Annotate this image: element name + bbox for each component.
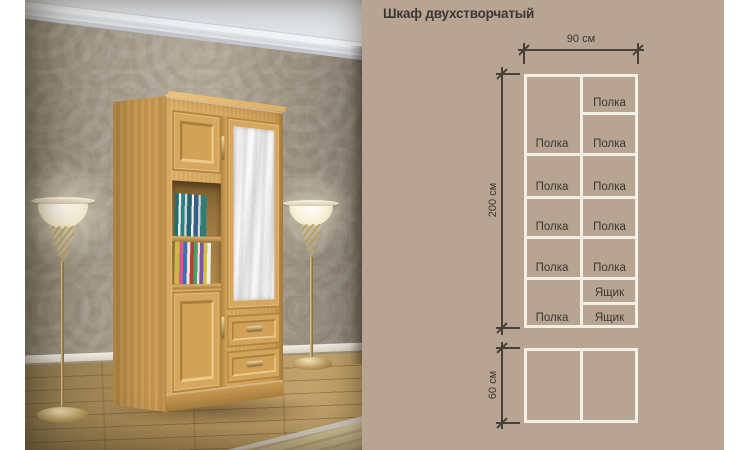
grid-cell-label: Полка [583, 137, 636, 151]
grid-shelf-line [524, 236, 638, 239]
wall-corner-shadow [350, 46, 362, 364]
width-dimension-line [518, 49, 644, 51]
grid-shelf-line [524, 153, 638, 156]
wardrobe-bottom-door [172, 290, 221, 393]
drawer-1 [227, 313, 280, 348]
grid-shelf-line [581, 112, 638, 115]
wardrobe-side-panel [113, 91, 166, 413]
bottom-door-handle [222, 317, 225, 338]
lower-grid-divider [580, 348, 583, 423]
height-dimension-label: 200 см [487, 174, 499, 226]
grid-cell-label: Полка [583, 96, 636, 110]
grid-cell-label: Полка [526, 137, 578, 151]
lower-height-dimension-label: 60 см [487, 359, 499, 411]
lower-height-dimension-line [501, 342, 503, 429]
right-margin [724, 0, 750, 450]
lamp-base [292, 357, 332, 370]
books-top-shelf [174, 193, 207, 237]
open-shelf-section [172, 180, 221, 289]
shelf-board [172, 284, 221, 290]
dimension-diagram: Шкаф двухстворчатый 90 см 200 см Полка П… [362, 0, 724, 450]
mirror [234, 126, 275, 301]
grid-shelf-line [581, 302, 638, 305]
grid-cell-label: Полка [526, 261, 578, 275]
grid-shelf-line [524, 277, 638, 280]
grid-cell-label: Полка [583, 180, 636, 194]
height-dimension-line [501, 67, 503, 335]
wardrobe-front [166, 96, 283, 412]
width-dimension-label: 90 см [524, 33, 638, 45]
grid-cell-label: Полка [583, 220, 636, 234]
drawer-2 [227, 347, 280, 384]
grid-cell-label: Полка [526, 220, 578, 234]
grid-cell-label: Полка [526, 311, 578, 325]
page-title: Шкаф двухстворчатый [383, 6, 534, 21]
grid-cell-label: Ящик [583, 286, 636, 300]
grid-cell-label: Ящик [583, 311, 636, 325]
lamp-stem [61, 262, 64, 414]
room-photo [25, 0, 362, 450]
mirror-door [227, 117, 280, 310]
lamp-stem [310, 257, 313, 363]
grid-cell-label: Полка [526, 180, 578, 194]
product-page-image: Шкаф двухстворчатый 90 см 200 см Полка П… [0, 0, 750, 450]
top-door-handle [222, 136, 225, 159]
left-margin [0, 0, 25, 450]
lamp-base [37, 407, 89, 423]
door-inset-panel [180, 121, 214, 164]
wardrobe-top-door [172, 110, 221, 174]
wardrobe [113, 91, 303, 426]
grid-shelf-line [524, 196, 638, 199]
door-inset-panel [180, 300, 214, 382]
books-bottom-shelf [174, 241, 211, 284]
grid-cell-label: Полка [583, 261, 636, 275]
